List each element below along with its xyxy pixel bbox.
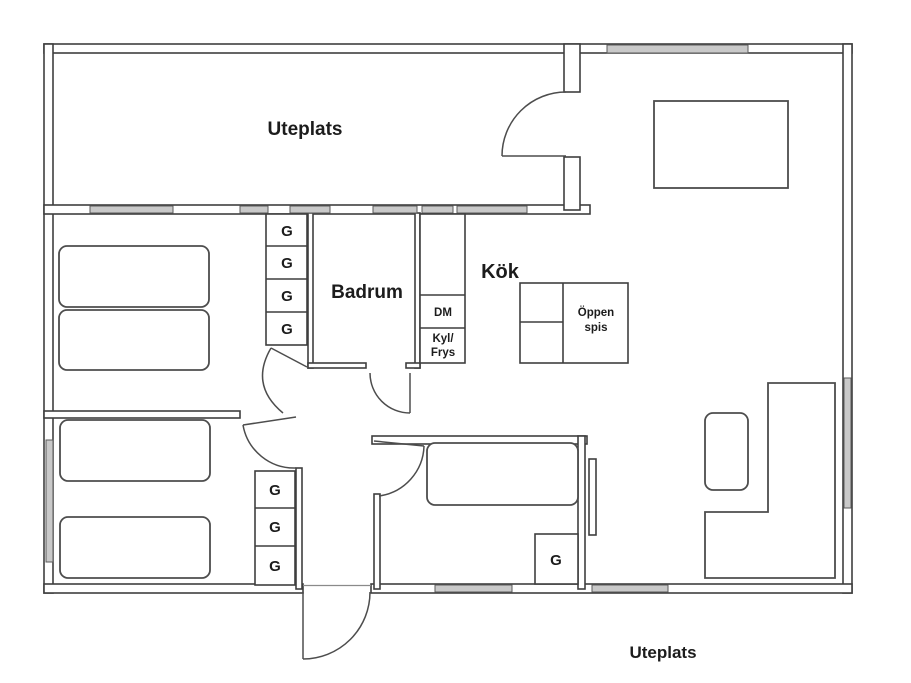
room-labels: Uteplats Badrum Kök Uteplats: [268, 119, 697, 662]
armchair: [705, 413, 748, 490]
wall-right: [843, 44, 852, 593]
bathroom-label: Badrum: [331, 282, 403, 303]
patio-door-arc: [502, 92, 566, 156]
floor-plan: G G G G DM Kyl/ Frys Öppen spis G: [0, 0, 911, 683]
wall-bedroom-middle-left: [374, 494, 380, 589]
wardrobe-label: G: [269, 558, 281, 575]
bedroom-top-door-arc: [263, 348, 283, 413]
fireplace-body: [520, 283, 628, 363]
fridge-freezer-label-line1: Kyl/: [432, 333, 454, 345]
bedroom-middle-door-arc: [379, 446, 424, 496]
wardrobe-label: G: [269, 482, 281, 499]
fireplace-label-line2: spis: [584, 322, 607, 334]
bedroom-bottom-left-door-arc: [243, 425, 296, 468]
radiator: [589, 459, 596, 535]
wardrobe-column-bottom: G G G: [255, 471, 295, 585]
window-left-wall: [46, 440, 53, 562]
wardrobe-label: G: [281, 288, 293, 305]
wardrobe-label: G: [281, 255, 293, 272]
patio-bottom-label: Uteplats: [629, 643, 696, 662]
patio-top-label: Uteplats: [268, 119, 343, 140]
window-patio-wall-2: [240, 206, 268, 213]
window-bottom-wall-1: [435, 585, 512, 592]
entry-door-arc: [303, 592, 370, 659]
wardrobe-single: G: [535, 534, 578, 584]
window-patio-wall-5: [422, 206, 453, 213]
floor-plan-drawing: G G G G DM Kyl/ Frys Öppen spis G: [0, 0, 911, 683]
bed: [60, 420, 210, 481]
wall-patio-right-lower: [564, 157, 580, 210]
bathroom-door-arc: [370, 373, 410, 413]
wardrobe-label: G: [281, 223, 293, 240]
window-bottom-wall-2: [592, 585, 668, 592]
bed: [60, 517, 210, 578]
wardrobe-label: G: [281, 321, 293, 338]
fireplace-label-line1: Öppen: [578, 306, 614, 319]
fireplace: Öppen spis: [520, 283, 628, 363]
table: [654, 101, 788, 188]
wall-bathroom-bottom-right: [406, 363, 420, 368]
bed: [59, 246, 209, 307]
wall-bedroom-bottom-left-right: [296, 468, 302, 589]
bed: [59, 310, 209, 370]
fridge-freezer-label-line2: Frys: [431, 347, 455, 359]
bedroom-top-door-leaf: [271, 348, 307, 367]
window-patio-wall-6: [457, 206, 527, 213]
window-right-wall: [844, 378, 851, 508]
wardrobe-label: G: [269, 519, 281, 536]
wall-bathroom-left: [308, 213, 313, 368]
wardrobe-label: G: [550, 552, 562, 569]
bed: [427, 443, 578, 505]
kitchen-label: Kök: [481, 261, 520, 283]
window-patio-wall-3: [290, 206, 330, 213]
window-patio-wall-1: [90, 206, 173, 213]
window-patio-wall-4: [373, 206, 417, 213]
kitchen-counter: DM Kyl/ Frys: [420, 214, 465, 363]
wall-bedroom-middle-right: [578, 436, 585, 589]
wardrobe-column-top: G G G G: [266, 214, 307, 345]
wall-patio-right-upper: [564, 44, 580, 92]
window-top: [607, 45, 748, 53]
bedroom-bottom-left-door-leaf: [243, 417, 296, 425]
wall-bathroom-bottom-left: [308, 363, 366, 368]
dishwasher-label: DM: [434, 307, 452, 319]
wall-bedroom-bottom-left-top: [44, 411, 240, 418]
